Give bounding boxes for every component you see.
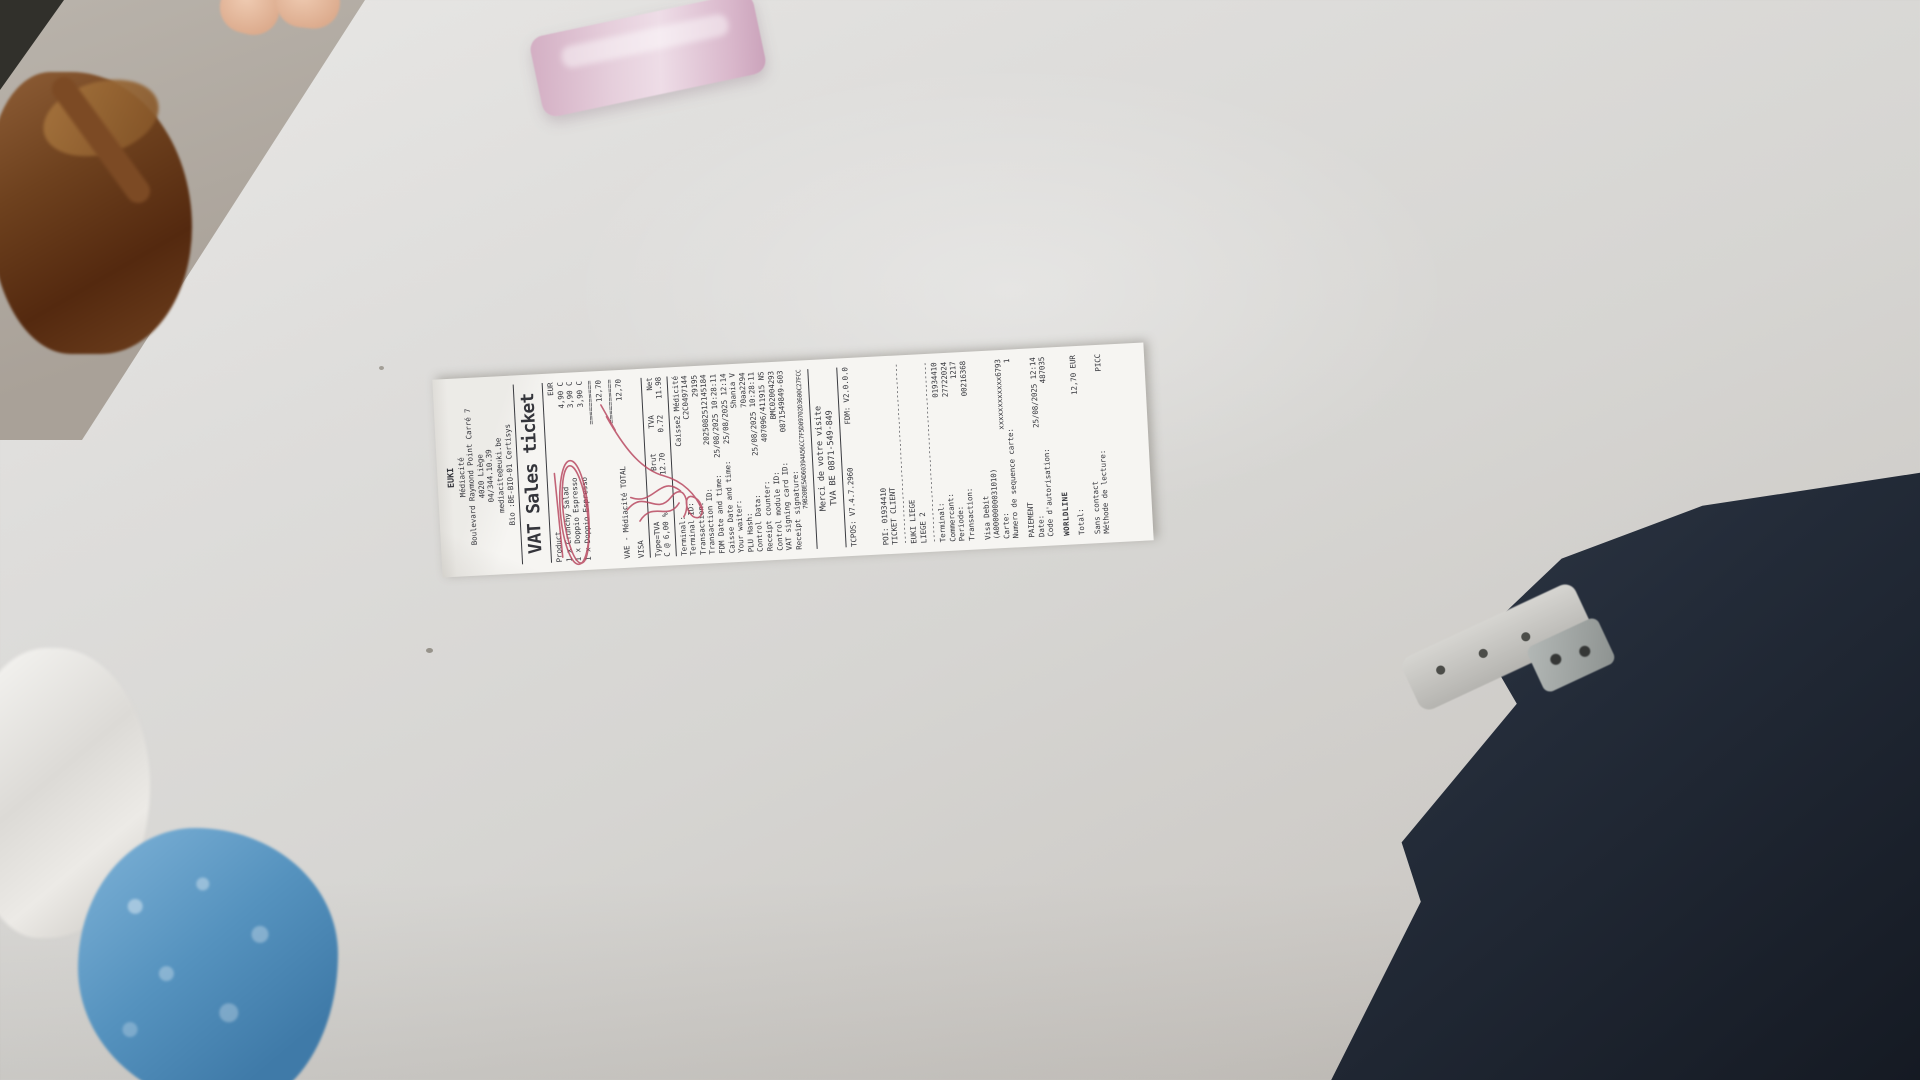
fdm-version: FDM: V2.0.0.0 <box>840 367 853 425</box>
total-amount: 12,70 <box>614 379 626 424</box>
card-payment-section: POI: 01934410 TICKET CLIENT ------------… <box>872 354 1113 546</box>
card-value: 1 <box>1002 358 1012 363</box>
detail-value <box>785 370 795 371</box>
card-value: PICC <box>1093 354 1104 372</box>
card-total-value: 12,70 EUR <box>1068 355 1080 395</box>
card-value: 487035 <box>1037 357 1048 384</box>
vat-amount: 0.72 <box>656 415 668 453</box>
total-amount-block: ========== 12,70 <box>604 379 625 424</box>
tcpos-version: TCPOS: V7.4.7.2960 <box>845 467 859 547</box>
vat-brut: 12.70 <box>658 453 670 491</box>
total-label: VAE - Médiacité TOTAL <box>618 466 632 559</box>
photo-of-receipt-on-table: { "scene": { "description": "Photograph … <box>0 0 1920 1080</box>
blue-object <box>78 828 338 1080</box>
vat-rate: C @ 6,00 % <box>660 491 673 557</box>
crumb <box>426 648 433 653</box>
card-label: Total: <box>1076 508 1087 535</box>
vat-net: 11.98 <box>654 377 666 415</box>
receipt: EUKI Médiacité Boulevard Raymond Point C… <box>432 343 1153 578</box>
software-versions: TCPOS: V7.4.7.2960 FDM: V2.0.0.0 <box>840 367 859 547</box>
card-value: 00216368 <box>958 361 969 397</box>
crumb <box>379 366 384 370</box>
